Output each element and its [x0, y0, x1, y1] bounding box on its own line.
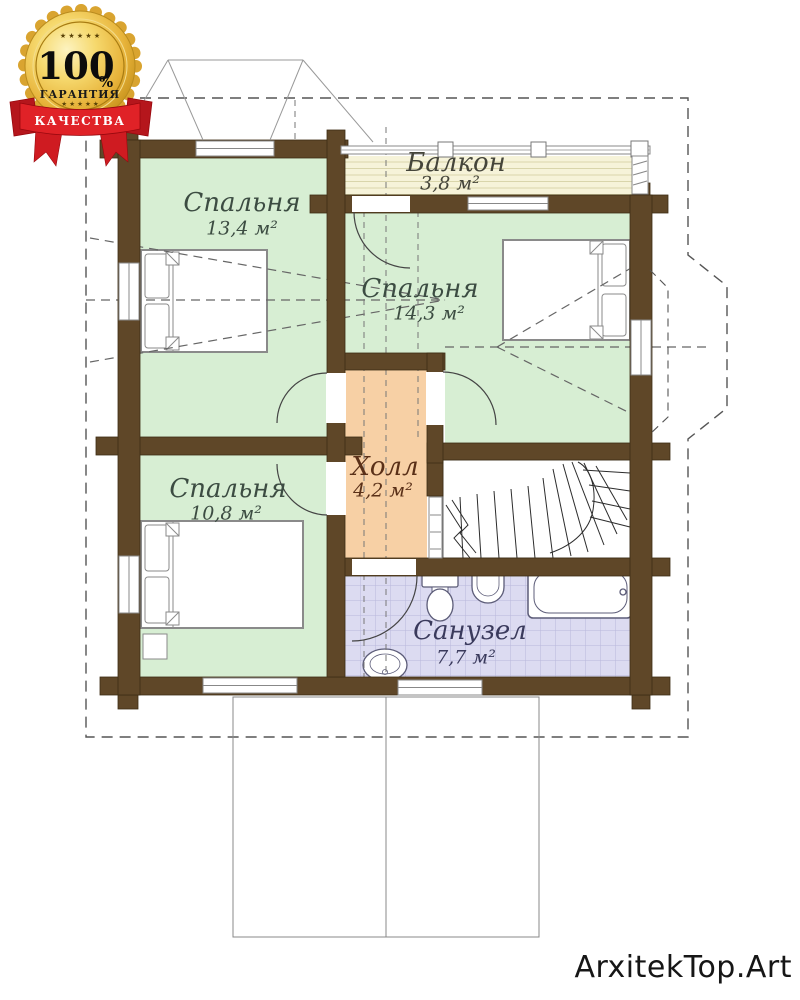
badge-graphic: ★ ★ ★ ★ ★ 100 % ГАРАНТИЯ ★ ★ ★ ★ ★ КАЧЕС… — [6, 2, 156, 170]
wall-log-stub — [632, 695, 650, 709]
room-name-bedroom-top-left: Спальня — [183, 190, 300, 216]
bed-double-bottom-left — [141, 521, 303, 628]
room-area-bedroom-right: 14,3 м² — [393, 305, 465, 324]
door-gap-bedroom-top-left — [326, 373, 346, 423]
room-name-bedroom-right: Спальня — [361, 276, 478, 302]
bay-window-dashed — [650, 270, 668, 434]
room-floor-bedroom-right-lower — [445, 353, 630, 443]
window-bottom-bathroom — [398, 680, 482, 695]
door-gap-bathroom — [352, 559, 416, 575]
room-name-bedroom-bottom-left: Спальня — [169, 476, 286, 502]
room-name-hall: Холл — [351, 454, 418, 480]
badge-stars-top: ★ ★ ★ ★ ★ — [60, 32, 100, 40]
room-area-bathroom: 7,7 м² — [436, 649, 496, 668]
railing-post — [631, 141, 648, 157]
window-left-lower — [119, 556, 139, 613]
window-left-upper — [119, 263, 139, 320]
railing-post — [531, 142, 546, 157]
badge-ribbon-text: КАЧЕСТВА — [34, 114, 125, 128]
door-gap-balcony — [352, 196, 410, 212]
pillow — [602, 244, 626, 286]
window-balcony-wall — [468, 197, 548, 210]
badge-stars-bottom: ★ ★ ★ ★ ★ — [61, 100, 99, 108]
wall-bottom — [100, 677, 670, 695]
pillow — [145, 577, 169, 623]
window-top-left — [196, 141, 274, 156]
wall-right — [630, 195, 652, 695]
bed-double-top-left — [141, 250, 267, 352]
bed-double-right — [503, 240, 630, 340]
porch-outline — [233, 697, 539, 937]
floor-plan-page: Балкон 3,8 м² Спальня 13,4 м² Спальня 14… — [0, 0, 800, 1000]
pedestal-sink — [363, 649, 407, 681]
pillow — [145, 304, 169, 348]
room-area-balcony: 3,8 м² — [420, 175, 480, 194]
stair-balustrade — [429, 497, 442, 558]
balcony-side-screen — [632, 156, 648, 194]
room-area-hall: 4,2 м² — [353, 482, 413, 501]
pillow — [602, 294, 626, 336]
wall-log-stub — [427, 460, 443, 496]
door-gap-bedroom-right — [426, 372, 444, 425]
door-gap-bedroom-bottom-left — [326, 462, 346, 515]
quality-guarantee-badge: ★ ★ ★ ★ ★ 100 % ГАРАНТИЯ ★ ★ ★ ★ ★ КАЧЕС… — [6, 2, 156, 170]
pillow — [145, 525, 169, 571]
room-name-bathroom: Санузел — [413, 618, 527, 644]
room-area-bedroom-bottom-left: 10,8 м² — [190, 505, 262, 524]
window-right — [631, 320, 651, 375]
pillow — [145, 254, 169, 298]
window-bottom-left — [203, 678, 297, 693]
nightstand — [143, 634, 167, 659]
watermark-logo: ArxitekTop.Art — [574, 950, 792, 985]
staircase — [443, 460, 630, 558]
room-area-bedroom-top-left: 13,4 м² — [206, 220, 278, 239]
wall-log-stub — [118, 695, 138, 709]
